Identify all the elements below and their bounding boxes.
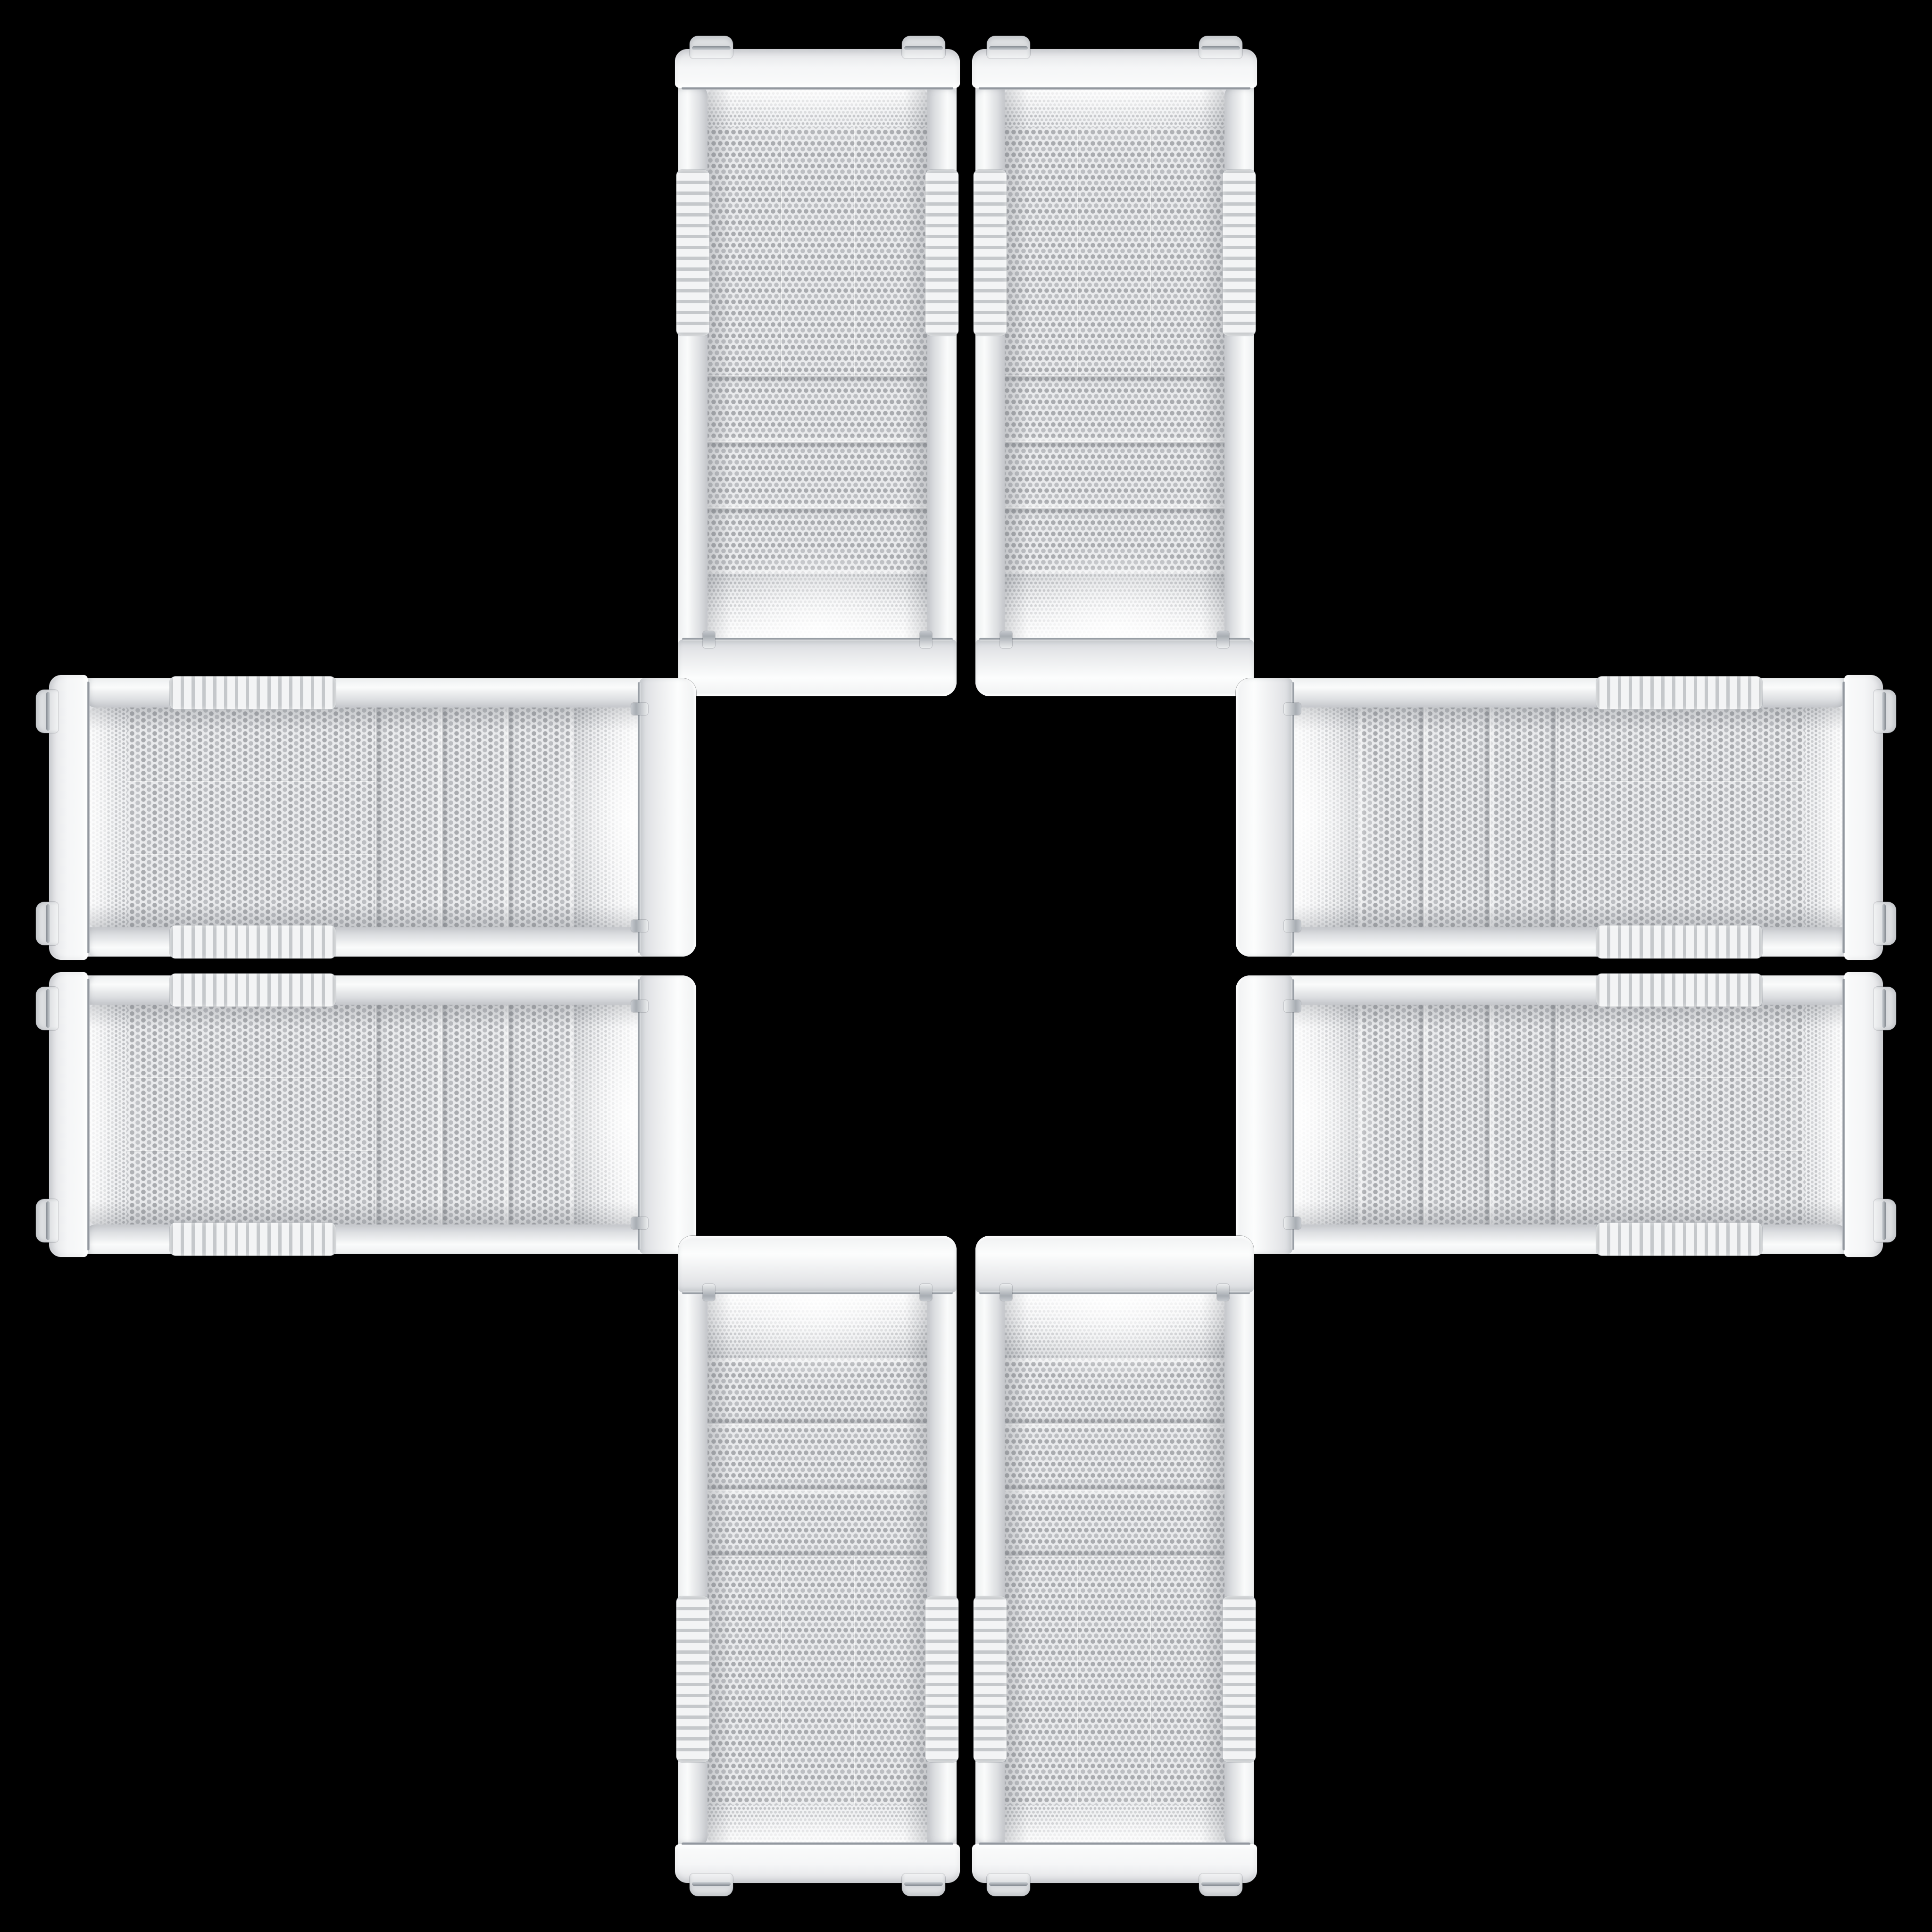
- grip-ribs: [170, 974, 336, 1007]
- case-foot: [36, 1199, 58, 1242]
- case-foot: [690, 36, 733, 58]
- chrome-corner-trim: [1284, 1217, 1301, 1229]
- drive-bay-covers: [707, 375, 928, 574]
- side-rail-right: [86, 678, 643, 708]
- mesh-seam: [1150, 127, 1151, 375]
- grip-ribs: [974, 170, 1007, 336]
- front-mesh-panel: COOLER MASTER: [1004, 88, 1225, 640]
- drive-bay: [441, 1004, 508, 1225]
- front-fan-mesh: COOLER MASTER: [88, 1004, 375, 1225]
- drive-bay: [1004, 441, 1225, 508]
- front-mesh-panel: COOLER MASTER: [88, 707, 640, 928]
- side-rail-left: [1289, 927, 1846, 957]
- side-rail-left: [927, 86, 957, 643]
- side-rail-right: [678, 86, 708, 643]
- drive-bay-covers: [375, 1004, 574, 1225]
- drive-bay-covers: [1358, 707, 1557, 928]
- chrome-corner-trim: [1217, 1284, 1229, 1301]
- case-top-right: COOLER MASTER: [975, 36, 1254, 696]
- drive-bay-covers: [1004, 375, 1225, 574]
- side-rail-left: [86, 927, 643, 957]
- drive-bay: [707, 1424, 928, 1491]
- collage-canvas: COOLER MASTER: [0, 0, 1932, 1932]
- drive-bay: [1358, 1004, 1424, 1225]
- grip-ribs: [1223, 170, 1256, 336]
- bottom-vent-mesh: [1004, 88, 1225, 127]
- top-vent-mesh: [1292, 1004, 1358, 1225]
- bottom-vent-mesh: [1004, 1805, 1225, 1844]
- front-fan-mesh: COOLER MASTER: [88, 707, 375, 928]
- bottom-vent-mesh: [1805, 707, 1844, 928]
- chrome-corner-trim: [920, 1284, 932, 1301]
- side-rail-right: [1289, 678, 1846, 708]
- grip-ribs: [925, 1596, 958, 1762]
- grip-ribs: [1596, 925, 1762, 958]
- front-mesh-panel: COOLER MASTER: [88, 1004, 640, 1225]
- front-fan-mesh: COOLER MASTER: [1004, 88, 1225, 375]
- mesh-seam: [127, 1077, 375, 1078]
- side-rail-right: [1289, 1224, 1846, 1254]
- chrome-corner-trim: [1217, 631, 1229, 648]
- bottom-vent-mesh: [88, 1004, 127, 1225]
- chrome-corner-trim: [631, 1000, 648, 1012]
- top-vent-mesh: [707, 574, 928, 640]
- side-rail-right: [1224, 86, 1254, 643]
- mesh-seam: [781, 127, 782, 375]
- drive-bay: [707, 1358, 928, 1424]
- drive-bay: [441, 707, 508, 928]
- case-top-cap: [1236, 678, 1292, 957]
- case-left-top: COOLER MASTER: [36, 678, 696, 957]
- bottom-vent-mesh: [1805, 1004, 1844, 1225]
- side-rail-right: [86, 1224, 643, 1254]
- drive-bay: [1358, 707, 1424, 928]
- drive-bay: [1004, 1358, 1225, 1424]
- grip-ribs: [170, 1223, 336, 1256]
- mesh-seam: [1557, 1077, 1805, 1078]
- front-fan-mesh: COOLER MASTER: [707, 1557, 928, 1844]
- drive-bay: [375, 1004, 441, 1225]
- drive-bay-covers: [707, 1358, 928, 1557]
- case-foot: [1199, 36, 1242, 58]
- drive-bay: [1424, 1004, 1491, 1225]
- bottom-vent-mesh: [707, 88, 928, 127]
- case-foot: [1199, 1874, 1242, 1896]
- front-mesh-panel: COOLER MASTER: [1292, 1004, 1844, 1225]
- case-foot: [987, 36, 1030, 58]
- case-foot: [690, 1874, 733, 1896]
- drive-bay-covers: [375, 707, 574, 928]
- mesh-seam: [1077, 127, 1078, 375]
- case-foot: [1874, 987, 1896, 1030]
- top-vent-mesh: [707, 1292, 928, 1358]
- top-vent-mesh: [574, 707, 640, 928]
- side-rail-left: [975, 86, 1005, 643]
- case-right-top: COOLER MASTER: [1236, 678, 1896, 957]
- mesh-seam: [854, 1557, 855, 1805]
- mesh-seam: [127, 1150, 375, 1151]
- grip-ribs: [170, 925, 336, 958]
- drive-bay: [1004, 508, 1225, 574]
- case-foot: [902, 1874, 945, 1896]
- side-rail-left: [975, 1289, 1005, 1846]
- chrome-corner-trim: [703, 631, 715, 648]
- case-top-cap: [975, 1236, 1254, 1292]
- case-top-cap: [640, 975, 696, 1254]
- grip-ribs: [676, 1596, 709, 1762]
- front-mesh-panel: COOLER MASTER: [707, 88, 928, 640]
- side-rail-left: [1289, 975, 1846, 1005]
- chrome-corner-trim: [1284, 920, 1301, 932]
- chrome-corner-trim: [1284, 703, 1301, 715]
- mesh-seam: [127, 854, 375, 855]
- case-foot: [1874, 902, 1896, 945]
- case-right-bottom: COOLER MASTER: [1236, 975, 1896, 1254]
- top-vent-mesh: [1004, 574, 1225, 640]
- chrome-corner-trim: [631, 703, 648, 715]
- grip-ribs: [974, 1596, 1007, 1762]
- case-foot: [987, 1874, 1030, 1896]
- case-foot: [36, 690, 58, 733]
- drive-bay-covers: [1004, 1358, 1225, 1557]
- mesh-seam: [781, 1557, 782, 1805]
- case-foot: [902, 36, 945, 58]
- drive-bay: [707, 441, 928, 508]
- mesh-seam: [854, 127, 855, 375]
- chrome-corner-trim: [1284, 1000, 1301, 1012]
- side-rail-left: [927, 1289, 957, 1846]
- drive-bay: [1491, 707, 1557, 928]
- case-foot: [1874, 690, 1896, 733]
- side-rail-right: [678, 1289, 708, 1846]
- chrome-corner-trim: [703, 1284, 715, 1301]
- front-fan-mesh: COOLER MASTER: [1004, 1557, 1225, 1844]
- top-vent-mesh: [574, 1004, 640, 1225]
- case-bottom-left: COOLER MASTER: [678, 1236, 957, 1896]
- chrome-corner-trim: [1000, 631, 1012, 648]
- mesh-seam: [1557, 854, 1805, 855]
- mesh-seam: [1557, 781, 1805, 782]
- side-rail-left: [86, 975, 643, 1005]
- chrome-corner-trim: [631, 920, 648, 932]
- front-fan-mesh: COOLER MASTER: [1557, 1004, 1844, 1225]
- top-vent-mesh: [1292, 707, 1358, 928]
- mesh-seam: [1077, 1557, 1078, 1805]
- case-top-cap: [1236, 975, 1292, 1254]
- grip-ribs: [925, 170, 958, 336]
- case-top-cap: [975, 640, 1254, 696]
- front-mesh-panel: COOLER MASTER: [1004, 1292, 1225, 1844]
- mesh-seam: [1557, 1150, 1805, 1151]
- grip-ribs: [170, 676, 336, 709]
- mesh-seam: [127, 781, 375, 782]
- case-foot: [36, 902, 58, 945]
- grip-ribs: [1223, 1596, 1256, 1762]
- case-top-left: COOLER MASTER: [678, 36, 957, 696]
- drive-bay: [1424, 707, 1491, 928]
- grip-ribs: [1596, 974, 1762, 1007]
- front-fan-mesh: COOLER MASTER: [707, 88, 928, 375]
- mesh-seam: [1150, 1557, 1151, 1805]
- drive-bay: [508, 707, 574, 928]
- drive-bay-covers: [1358, 1004, 1557, 1225]
- grip-ribs: [1596, 1223, 1762, 1256]
- chrome-corner-trim: [920, 631, 932, 648]
- front-mesh-panel: COOLER MASTER: [707, 1292, 928, 1844]
- chrome-corner-trim: [631, 1217, 648, 1229]
- grip-ribs: [1596, 676, 1762, 709]
- case-top-cap: [678, 1236, 957, 1292]
- side-rail-right: [1224, 1289, 1254, 1846]
- drive-bay: [1004, 1491, 1225, 1557]
- drive-bay: [707, 508, 928, 574]
- drive-bay: [707, 1491, 928, 1557]
- drive-bay: [508, 1004, 574, 1225]
- top-vent-mesh: [1004, 1292, 1225, 1358]
- chrome-corner-trim: [1000, 1284, 1012, 1301]
- bottom-vent-mesh: [707, 1805, 928, 1844]
- case-top-cap: [678, 640, 957, 696]
- case-left-bottom: COOLER MASTER: [36, 975, 696, 1254]
- case-foot: [36, 987, 58, 1030]
- drive-bay: [1491, 1004, 1557, 1225]
- case-bottom-right: COOLER MASTER: [975, 1236, 1254, 1896]
- grip-ribs: [676, 170, 709, 336]
- drive-bay: [707, 375, 928, 441]
- front-fan-mesh: COOLER MASTER: [1557, 707, 1844, 928]
- case-top-cap: [640, 678, 696, 957]
- drive-bay: [375, 707, 441, 928]
- bottom-vent-mesh: [88, 707, 127, 928]
- front-mesh-panel: COOLER MASTER: [1292, 707, 1844, 928]
- case-foot: [1874, 1199, 1896, 1242]
- drive-bay: [1004, 375, 1225, 441]
- drive-bay: [1004, 1424, 1225, 1491]
